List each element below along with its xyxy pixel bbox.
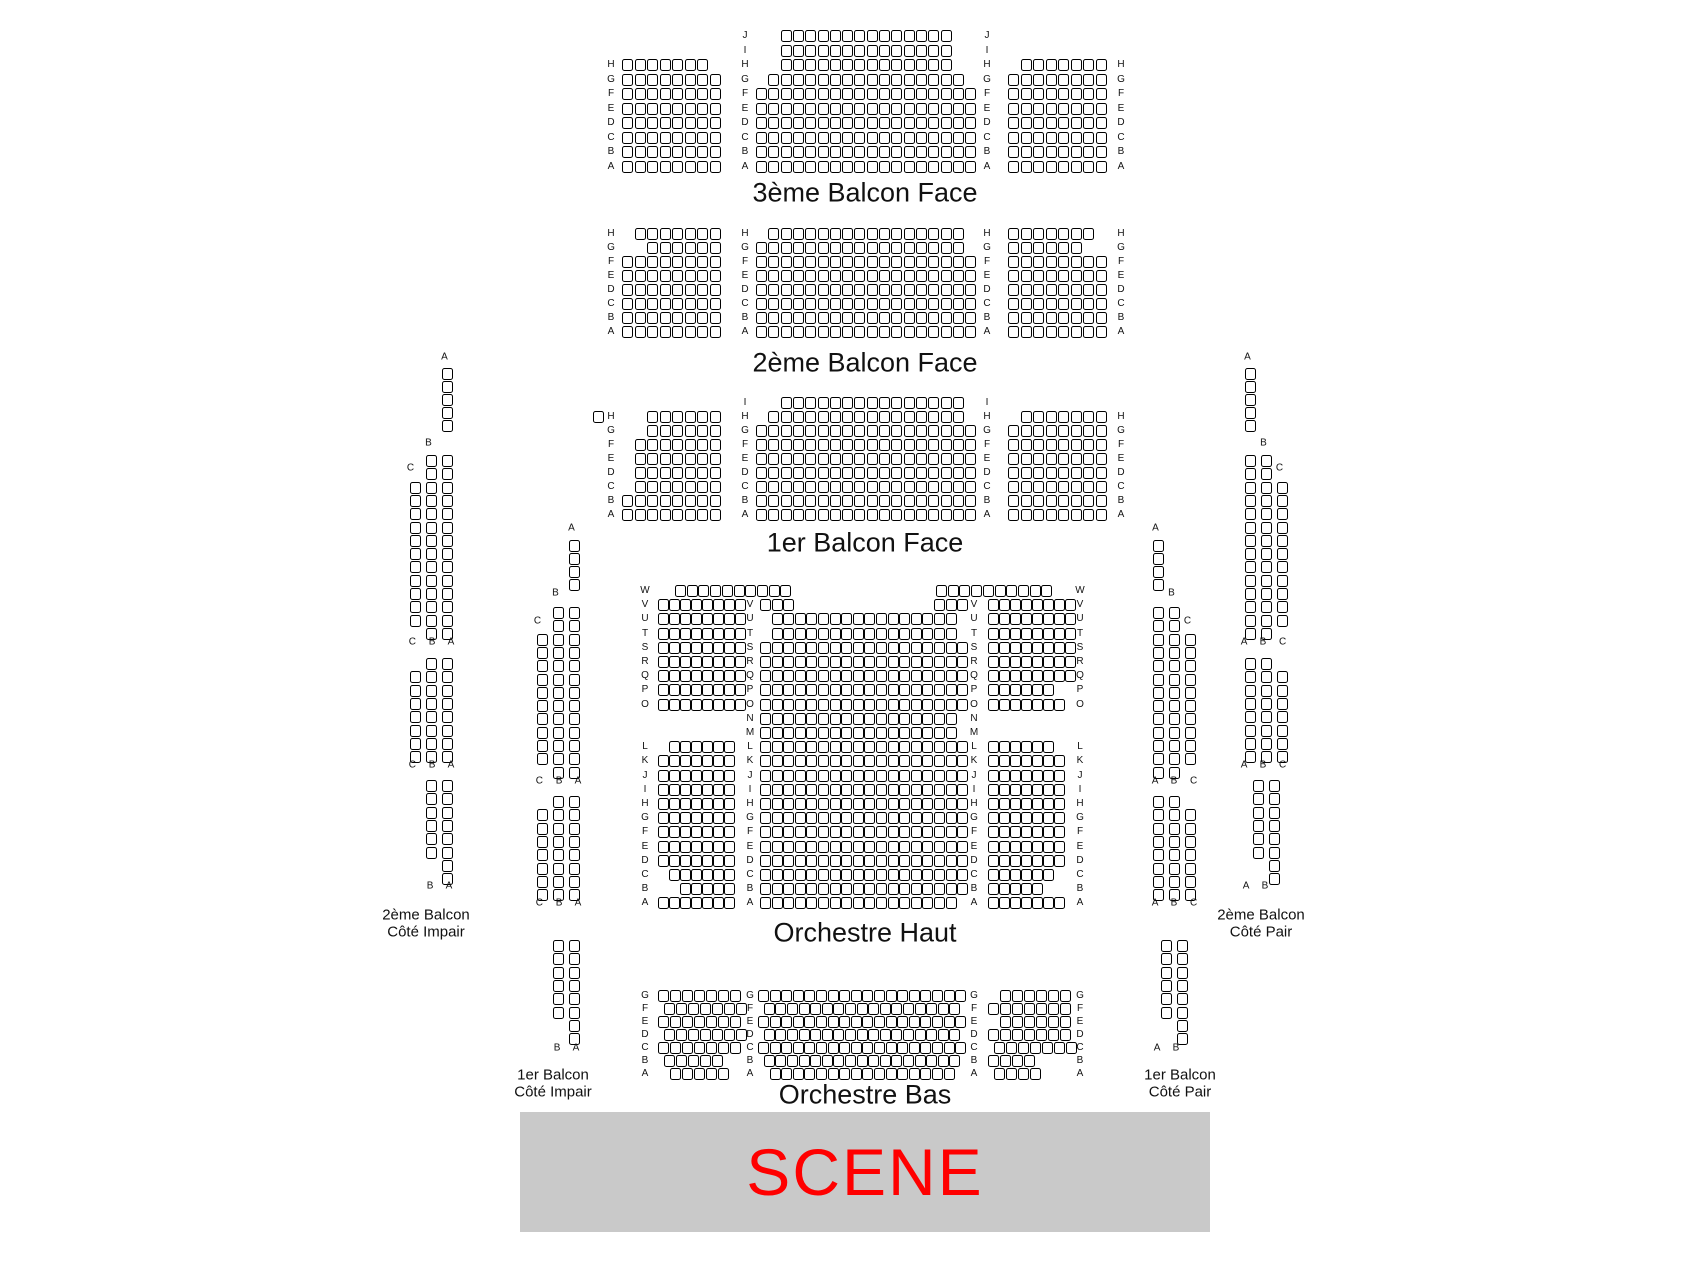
seat[interactable] [916, 467, 927, 479]
seat[interactable] [1021, 784, 1032, 796]
seat[interactable] [783, 656, 794, 668]
seat[interactable] [426, 495, 437, 507]
seat[interactable] [1008, 284, 1019, 296]
seat[interactable] [851, 1042, 862, 1054]
seat[interactable] [756, 467, 767, 479]
seat[interactable] [891, 326, 902, 338]
seat[interactable] [1012, 1003, 1023, 1015]
seat[interactable] [724, 798, 735, 810]
seat[interactable] [864, 841, 875, 853]
seat[interactable] [647, 103, 658, 115]
seat[interactable] [818, 755, 829, 767]
seat[interactable] [818, 74, 829, 86]
seat[interactable] [691, 883, 702, 895]
seat[interactable] [647, 161, 658, 173]
seat[interactable] [1036, 1016, 1047, 1028]
seat[interactable] [867, 146, 878, 158]
seat[interactable] [922, 628, 933, 640]
seat[interactable] [999, 770, 1010, 782]
seat[interactable] [830, 74, 841, 86]
seat[interactable] [806, 642, 817, 654]
seat[interactable] [691, 699, 702, 711]
seat[interactable] [904, 509, 915, 521]
seat[interactable] [818, 88, 829, 100]
seat[interactable] [768, 117, 779, 129]
seat[interactable] [1021, 642, 1032, 654]
seat[interactable] [1054, 798, 1065, 810]
seat[interactable] [888, 855, 899, 867]
seat[interactable] [658, 599, 669, 611]
seat[interactable] [710, 439, 721, 451]
seat[interactable] [783, 798, 794, 810]
seat[interactable] [830, 30, 841, 42]
seat[interactable] [904, 74, 915, 86]
seat[interactable] [772, 869, 783, 881]
seat[interactable] [988, 869, 999, 881]
seat[interactable] [915, 1003, 926, 1015]
seat[interactable] [880, 1029, 891, 1041]
seat[interactable] [793, 439, 804, 451]
seat[interactable] [867, 161, 878, 173]
seat[interactable] [899, 784, 910, 796]
seat[interactable] [795, 628, 806, 640]
seat[interactable] [426, 807, 437, 819]
seat[interactable] [760, 812, 771, 824]
seat[interactable] [830, 613, 841, 625]
seat[interactable] [783, 713, 794, 725]
seat[interactable] [1261, 575, 1272, 587]
seat[interactable] [1083, 228, 1094, 240]
seat[interactable] [1021, 613, 1032, 625]
seat[interactable] [1185, 634, 1196, 646]
seat[interactable] [888, 727, 899, 739]
seat[interactable] [879, 88, 890, 100]
seat[interactable] [853, 670, 864, 682]
seat[interactable] [867, 228, 878, 240]
seat[interactable] [806, 628, 817, 640]
seat[interactable] [941, 439, 952, 451]
seat[interactable] [818, 628, 829, 640]
seat[interactable] [635, 467, 646, 479]
seat[interactable] [1096, 425, 1107, 437]
seat[interactable] [647, 312, 658, 324]
seat[interactable] [793, 425, 804, 437]
seat[interactable] [922, 841, 933, 853]
seat[interactable] [904, 397, 915, 409]
seat[interactable] [647, 270, 658, 282]
seat[interactable] [934, 613, 945, 625]
seat[interactable] [795, 699, 806, 711]
seat[interactable] [1058, 312, 1069, 324]
seat[interactable] [805, 242, 816, 254]
seat[interactable] [1083, 298, 1094, 310]
seat[interactable] [537, 876, 548, 888]
seat[interactable] [1261, 535, 1272, 547]
seat[interactable] [891, 146, 902, 158]
seat[interactable] [926, 1029, 937, 1041]
seat[interactable] [772, 599, 783, 611]
seat[interactable] [920, 990, 931, 1002]
seat[interactable] [957, 855, 968, 867]
seat[interactable] [787, 1055, 798, 1067]
seat[interactable] [818, 161, 829, 173]
seat[interactable] [1177, 980, 1188, 992]
seat[interactable] [553, 1007, 564, 1019]
seat[interactable] [842, 270, 853, 282]
seat[interactable] [1245, 698, 1256, 710]
seat[interactable] [702, 613, 713, 625]
seat[interactable] [553, 634, 564, 646]
seat[interactable] [891, 1003, 902, 1015]
seat[interactable] [879, 453, 890, 465]
seat[interactable] [672, 88, 683, 100]
seat[interactable] [569, 553, 580, 565]
seat[interactable] [965, 481, 976, 493]
seat[interactable] [758, 1042, 769, 1054]
seat[interactable] [864, 713, 875, 725]
seat[interactable] [1008, 298, 1019, 310]
seat[interactable] [660, 411, 671, 423]
seat[interactable] [842, 298, 853, 310]
seat[interactable] [1185, 876, 1196, 888]
seat[interactable] [818, 30, 829, 42]
seat[interactable] [888, 841, 899, 853]
seat[interactable] [691, 826, 702, 838]
seat[interactable] [999, 826, 1010, 838]
seat[interactable] [853, 883, 864, 895]
seat[interactable] [781, 1068, 792, 1080]
seat[interactable] [1054, 897, 1065, 909]
seat[interactable] [1033, 256, 1044, 268]
seat[interactable] [965, 326, 976, 338]
seat[interactable] [1245, 394, 1256, 406]
seat[interactable] [1030, 1068, 1041, 1080]
seat[interactable] [647, 228, 658, 240]
seat[interactable] [1021, 59, 1032, 71]
seat[interactable] [569, 809, 580, 821]
seat[interactable] [691, 784, 702, 796]
seat[interactable] [635, 88, 646, 100]
seat[interactable] [1153, 849, 1164, 861]
seat[interactable] [672, 59, 683, 71]
seat[interactable] [941, 425, 952, 437]
seat[interactable] [988, 897, 999, 909]
seat[interactable] [1008, 495, 1019, 507]
seat[interactable] [680, 883, 691, 895]
seat[interactable] [938, 1055, 949, 1067]
seat[interactable] [934, 855, 945, 867]
seat[interactable] [862, 1042, 873, 1054]
seat[interactable] [1008, 270, 1019, 282]
seat[interactable] [818, 326, 829, 338]
seat[interactable] [756, 298, 767, 310]
seat[interactable] [442, 738, 453, 750]
seat[interactable] [426, 482, 437, 494]
seat[interactable] [724, 642, 735, 654]
seat[interactable] [922, 770, 933, 782]
seat[interactable] [816, 1016, 827, 1028]
seat[interactable] [553, 953, 564, 965]
seat[interactable] [697, 59, 708, 71]
seat[interactable] [537, 836, 548, 848]
seat[interactable] [1096, 161, 1107, 173]
seat[interactable] [1245, 407, 1256, 419]
seat[interactable] [891, 256, 902, 268]
seat[interactable] [713, 784, 724, 796]
seat[interactable] [888, 642, 899, 654]
seat[interactable] [1071, 453, 1082, 465]
seat[interactable] [879, 132, 890, 144]
seat[interactable] [410, 601, 421, 613]
seat[interactable] [904, 161, 915, 173]
seat[interactable] [702, 599, 713, 611]
seat[interactable] [1261, 588, 1272, 600]
seat[interactable] [426, 685, 437, 697]
seat[interactable] [1006, 585, 1017, 597]
seat[interactable] [660, 59, 671, 71]
seat[interactable] [876, 770, 887, 782]
seat[interactable] [780, 585, 791, 597]
seat[interactable] [713, 670, 724, 682]
seat[interactable] [988, 628, 999, 640]
seat[interactable] [928, 326, 939, 338]
seat[interactable] [842, 256, 853, 268]
seat[interactable] [839, 1016, 850, 1028]
seat[interactable] [793, 509, 804, 521]
seat[interactable] [426, 522, 437, 534]
seat[interactable] [854, 161, 865, 173]
seat[interactable] [669, 699, 680, 711]
seat[interactable] [1083, 132, 1094, 144]
seat[interactable] [1177, 1007, 1188, 1019]
seat[interactable] [569, 674, 580, 686]
seat[interactable] [805, 425, 816, 437]
seat[interactable] [669, 812, 680, 824]
seat[interactable] [965, 270, 976, 282]
seat[interactable] [999, 784, 1010, 796]
seat[interactable] [928, 425, 939, 437]
seat[interactable] [1177, 993, 1188, 1005]
seat[interactable] [891, 467, 902, 479]
seat[interactable] [1021, 284, 1032, 296]
seat[interactable] [658, 826, 669, 838]
seat[interactable] [1185, 740, 1196, 752]
seat[interactable] [854, 397, 865, 409]
seat[interactable] [854, 88, 865, 100]
seat[interactable] [672, 481, 683, 493]
seat[interactable] [1185, 727, 1196, 739]
seat[interactable] [697, 467, 708, 479]
seat[interactable] [946, 826, 957, 838]
seat[interactable] [879, 59, 890, 71]
seat[interactable] [876, 684, 887, 696]
seat[interactable] [876, 869, 887, 881]
seat[interactable] [1021, 228, 1032, 240]
seat[interactable] [764, 1055, 775, 1067]
seat[interactable] [1058, 74, 1069, 86]
seat[interactable] [876, 670, 887, 682]
seat[interactable] [426, 615, 437, 627]
seat[interactable] [928, 509, 939, 521]
seat[interactable] [1185, 849, 1196, 861]
seat[interactable] [1096, 132, 1107, 144]
seat[interactable] [818, 146, 829, 158]
seat[interactable] [1277, 738, 1288, 750]
seat[interactable] [768, 88, 779, 100]
seat[interactable] [904, 45, 915, 57]
seat[interactable] [867, 74, 878, 86]
seat[interactable] [830, 727, 841, 739]
seat[interactable] [876, 855, 887, 867]
seat[interactable] [622, 298, 633, 310]
seat[interactable] [660, 270, 671, 282]
seat[interactable] [928, 495, 939, 507]
seat[interactable] [735, 699, 746, 711]
seat[interactable] [864, 727, 875, 739]
seat[interactable] [988, 613, 999, 625]
seat[interactable] [669, 670, 680, 682]
seat[interactable] [957, 684, 968, 696]
seat[interactable] [934, 599, 945, 611]
seat[interactable] [772, 855, 783, 867]
seat[interactable] [816, 1068, 827, 1080]
seat[interactable] [718, 990, 729, 1002]
seat[interactable] [745, 585, 756, 597]
seat[interactable] [957, 770, 968, 782]
seat[interactable] [904, 270, 915, 282]
seat[interactable] [680, 741, 691, 753]
seat[interactable] [934, 812, 945, 824]
seat[interactable] [537, 674, 548, 686]
seat[interactable] [622, 132, 633, 144]
seat[interactable] [1153, 647, 1164, 659]
seat[interactable] [1058, 242, 1069, 254]
seat[interactable] [941, 74, 952, 86]
seat[interactable] [1033, 411, 1044, 423]
seat[interactable] [899, 869, 910, 881]
seat[interactable] [818, 467, 829, 479]
seat[interactable] [553, 993, 564, 1005]
seat[interactable] [1033, 439, 1044, 451]
seat[interactable] [442, 368, 453, 380]
seat[interactable] [1065, 599, 1076, 611]
seat[interactable] [830, 481, 841, 493]
seat[interactable] [946, 599, 957, 611]
seat[interactable] [669, 826, 680, 838]
seat[interactable] [553, 740, 564, 752]
seat[interactable] [1153, 863, 1164, 875]
seat[interactable] [934, 684, 945, 696]
seat[interactable] [718, 1042, 729, 1054]
seat[interactable] [1000, 1016, 1011, 1028]
seat[interactable] [805, 59, 816, 71]
seat[interactable] [756, 132, 767, 144]
seat[interactable] [1054, 628, 1065, 640]
seat[interactable] [1042, 1042, 1053, 1054]
seat[interactable] [1277, 522, 1288, 534]
seat[interactable] [1021, 869, 1032, 881]
seat[interactable] [724, 784, 735, 796]
seat[interactable] [853, 869, 864, 881]
seat[interactable] [1046, 88, 1057, 100]
seat[interactable] [1010, 599, 1021, 611]
seat[interactable] [1036, 1003, 1047, 1015]
seat[interactable] [842, 439, 853, 451]
seat[interactable] [830, 326, 841, 338]
seat[interactable] [879, 146, 890, 158]
seat[interactable] [718, 1068, 729, 1080]
seat[interactable] [868, 1029, 879, 1041]
seat[interactable] [1153, 674, 1164, 686]
seat[interactable] [1269, 807, 1280, 819]
seat[interactable] [1245, 601, 1256, 613]
seat[interactable] [953, 467, 964, 479]
seat[interactable] [999, 755, 1010, 767]
seat[interactable] [999, 741, 1010, 753]
seat[interactable] [879, 425, 890, 437]
seat[interactable] [442, 455, 453, 467]
seat[interactable] [853, 684, 864, 696]
seat[interactable] [932, 1016, 943, 1028]
seat[interactable] [928, 312, 939, 324]
seat[interactable] [553, 809, 564, 821]
seat[interactable] [672, 117, 683, 129]
seat[interactable] [1018, 585, 1029, 597]
seat[interactable] [1033, 228, 1044, 240]
seat[interactable] [833, 1003, 844, 1015]
seat[interactable] [781, 481, 792, 493]
seat[interactable] [553, 980, 564, 992]
seat[interactable] [1021, 770, 1032, 782]
seat[interactable] [1277, 615, 1288, 627]
seat[interactable] [1185, 863, 1196, 875]
seat[interactable] [888, 812, 899, 824]
seat[interactable] [1046, 481, 1057, 493]
seat[interactable] [1245, 381, 1256, 393]
seat[interactable] [830, 509, 841, 521]
seat[interactable] [946, 656, 957, 668]
seat[interactable] [410, 522, 421, 534]
seat[interactable] [805, 161, 816, 173]
seat[interactable] [805, 256, 816, 268]
seat[interactable] [909, 1042, 920, 1054]
seat[interactable] [672, 467, 683, 479]
seat[interactable] [830, 161, 841, 173]
seat[interactable] [1021, 439, 1032, 451]
seat[interactable] [818, 684, 829, 696]
seat[interactable] [842, 88, 853, 100]
seat[interactable] [805, 132, 816, 144]
seat[interactable] [569, 849, 580, 861]
seat[interactable] [841, 684, 852, 696]
seat[interactable] [781, 495, 792, 507]
seat[interactable] [916, 103, 927, 115]
seat[interactable] [781, 256, 792, 268]
seat[interactable] [647, 509, 658, 521]
seat[interactable] [710, 242, 721, 254]
seat[interactable] [697, 481, 708, 493]
seat[interactable] [830, 298, 841, 310]
seat[interactable] [842, 481, 853, 493]
seat[interactable] [442, 495, 453, 507]
seat[interactable] [772, 713, 783, 725]
seat[interactable] [410, 588, 421, 600]
seat[interactable] [805, 284, 816, 296]
seat[interactable] [941, 161, 952, 173]
seat[interactable] [904, 425, 915, 437]
seat[interactable] [664, 1055, 675, 1067]
seat[interactable] [697, 88, 708, 100]
